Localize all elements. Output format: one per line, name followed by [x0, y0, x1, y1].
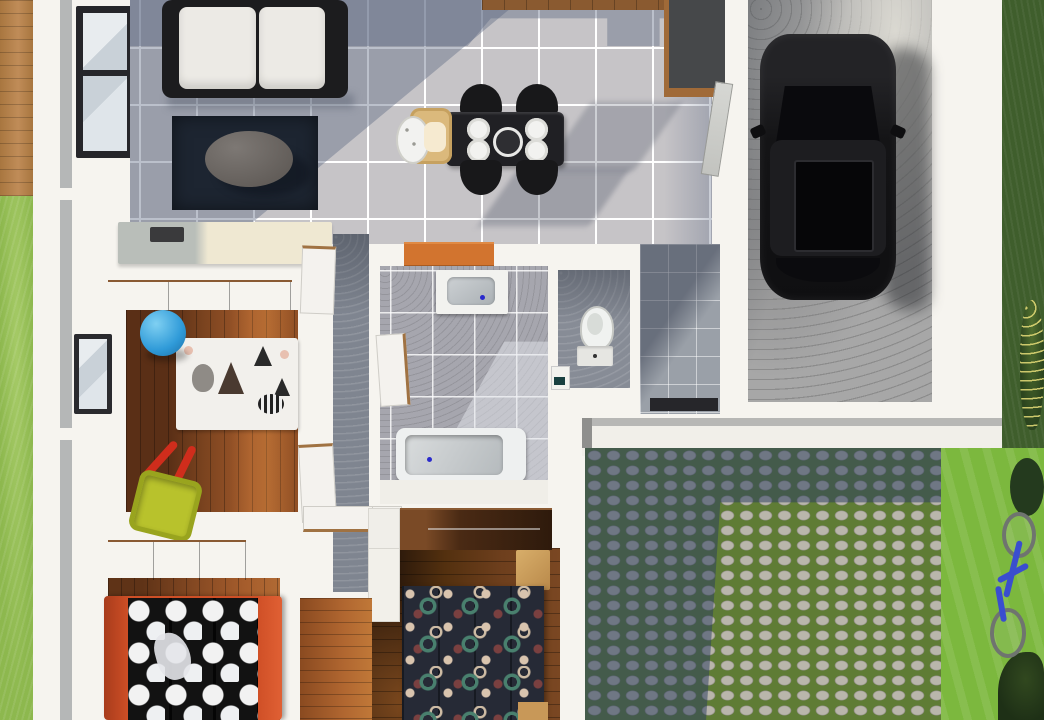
window-glass [79, 339, 107, 409]
toy-tub [127, 468, 204, 544]
wood-bench [516, 550, 550, 590]
sink-vanity [436, 270, 508, 314]
rug-triangle-motif [274, 378, 290, 396]
bathroom-floor-strip [380, 480, 548, 504]
patio-edge-cap [582, 418, 592, 448]
bed-wood-rail [518, 702, 548, 720]
rug-dot-motif [280, 350, 289, 359]
toilet-tank [577, 346, 613, 366]
bicycle [984, 512, 1040, 652]
rug-triangle-motif [254, 346, 272, 366]
bathroom-door [376, 333, 411, 407]
blue-ball [140, 310, 186, 356]
bathtub-interior [405, 435, 503, 475]
rug-antler-motif [218, 362, 244, 394]
toilet [580, 306, 614, 350]
polka-dot-duvet [128, 598, 258, 720]
car-windshield [774, 86, 882, 142]
cobblestone-driveway [585, 448, 941, 720]
bathtub-drain [427, 457, 432, 462]
dark-doormat [650, 398, 718, 411]
center-bowl [493, 127, 523, 157]
media-box [150, 227, 184, 242]
wooden-deck [0, 0, 33, 196]
plate [525, 118, 548, 141]
orange-counter [404, 242, 494, 268]
bathtub [396, 428, 526, 482]
wardrobe-handle [428, 528, 540, 530]
master-door-open [368, 548, 400, 622]
rug-zebra-motif [258, 394, 284, 414]
small-washbasin [551, 366, 570, 390]
single-bed-orange-frame [104, 596, 282, 720]
window-glass [83, 13, 127, 151]
bottom-hallway-wood-floor [300, 598, 372, 720]
kids-rug [176, 338, 298, 430]
kids-room-window [74, 334, 112, 414]
laundry-floor [640, 244, 720, 414]
master-wardrobe [398, 508, 552, 550]
wall-notch [57, 428, 75, 440]
driveway-shadow [585, 448, 941, 720]
car-sunroof [794, 160, 874, 252]
bicycle-wheel [990, 608, 1026, 658]
door-leaf [300, 245, 336, 314]
rug-animal-motif [192, 364, 214, 392]
window-divider [83, 70, 127, 76]
plate [525, 139, 548, 162]
flowering-bush [1020, 300, 1044, 430]
dining-table [446, 112, 564, 166]
car-rear-window [776, 258, 880, 282]
toilet-bowl-interior [587, 313, 603, 335]
grass-strip-left [0, 196, 33, 720]
flush-button [593, 354, 597, 358]
floor-plan-render [0, 0, 1044, 720]
plate [467, 118, 490, 141]
pillow [150, 628, 195, 683]
wall-notch [57, 188, 75, 200]
bedroom-wardrobe [108, 540, 246, 580]
master-bed-patterned-duvet [402, 586, 544, 720]
bush [1010, 458, 1044, 516]
plate [467, 139, 490, 162]
black-suv-car [760, 34, 896, 300]
high-chair-seat [424, 122, 446, 152]
hallway-tile-floor [333, 234, 369, 592]
sofa [162, 0, 348, 98]
door-leaf [303, 506, 373, 532]
sofa-cushion [179, 7, 256, 89]
washbasin-front [554, 377, 565, 385]
left-exterior-wall-face [60, 0, 72, 720]
sofa-cushion [259, 7, 325, 89]
kitchen-counter [482, 0, 668, 10]
kids-wardrobe [108, 280, 292, 312]
sink-drain [480, 295, 485, 300]
sink-basin [447, 277, 495, 305]
toy-wheelbarrow [105, 428, 207, 544]
living-room-window [76, 6, 134, 158]
high-chair [396, 108, 452, 164]
coffee-table [205, 131, 293, 187]
